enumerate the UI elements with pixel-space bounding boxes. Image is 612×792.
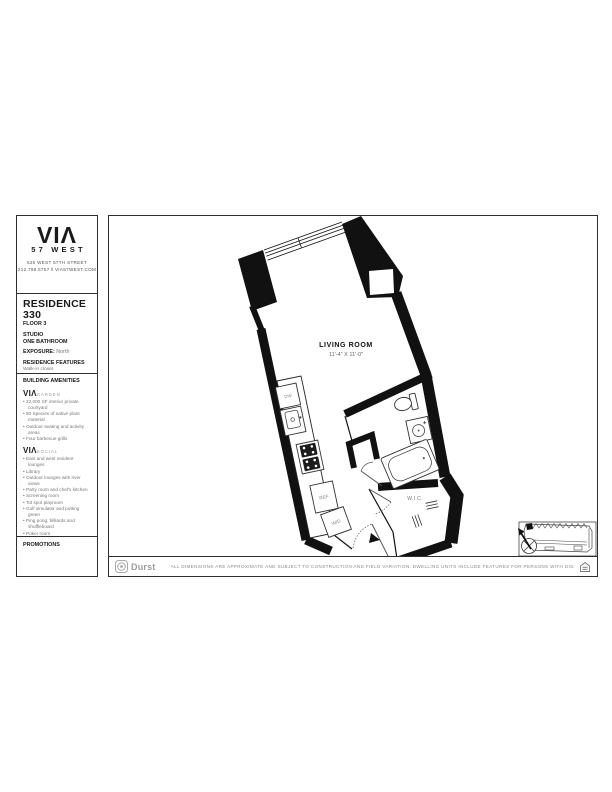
sidebar-panel: VIΛ 57 WEST 625 WEST 57TH STREET 212.789…: [16, 215, 98, 577]
via-logo: VIΛ: [17, 225, 97, 245]
floorplan-sheet: DW REF W/D: [108, 215, 598, 577]
living-room-label: LIVING ROOM: [319, 342, 373, 349]
unit-type-1: STUDIO: [23, 332, 91, 339]
exposure-value: North: [56, 349, 69, 355]
wic-label: W.I.C.: [407, 496, 422, 502]
amenity-group-garden-title: VIΛGARDEN: [23, 388, 91, 399]
compass-icon: [518, 528, 537, 554]
living-room-dims: 11'-4" X 11'-0": [329, 352, 363, 358]
exposure-label: EXPOSURE:: [23, 349, 55, 355]
doors: [353, 462, 391, 557]
unit-location-marker: [526, 523, 533, 530]
amenity-item: 22,000 SF interior private courtyard: [23, 399, 91, 411]
amenity-item: East and west resident lounges: [23, 456, 91, 468]
brand-address: 625 WEST 57TH STREET: [17, 260, 97, 267]
facade-notch: [369, 269, 394, 295]
brand-block: VIΛ 57 WEST 625 WEST 57TH STREET 212.789…: [17, 216, 97, 293]
residence-info-block: RESIDENCE 330 FLOOR 3 STUDIO ONE BATHROO…: [17, 293, 97, 373]
floorplan-drawing: DW REF W/D: [109, 216, 597, 557]
amenity-item: Ping pong, billiards and shuffleboard: [23, 518, 91, 530]
via-mark: VIΛ: [23, 389, 37, 398]
exposure-line: EXPOSURE: North: [23, 349, 91, 356]
features-header: RESIDENCE FEATURES: [23, 360, 91, 367]
amenity-item: Outdoor seating and activity areas: [23, 424, 91, 436]
entry-marker: [369, 533, 380, 543]
dishwasher: DW: [275, 383, 300, 409]
brand-phone-web: 212.789.5757 ‖ VIA57WEST.COM: [17, 267, 97, 274]
amenity-group-social-title: VIΛSOCIAL: [23, 445, 91, 456]
building-amenities-block: BUILDING AMENITIES VIΛGARDEN 22,000 SF i…: [17, 373, 97, 536]
residence-title: RESIDENCE 330: [23, 299, 91, 321]
amenity-group-name: GARDEN: [37, 392, 61, 397]
promotions-header: PROMOTIONS: [23, 542, 91, 549]
amenities-header: BUILDING AMENITIES: [23, 378, 91, 385]
promotions-block: PROMOTIONS: [17, 536, 97, 574]
residence-floor: FLOOR 3: [23, 321, 91, 328]
disclaimer-text: ALL DIMENSIONS ARE APPROXIMATE AND SUBJE…: [171, 564, 574, 569]
durst-logo-text: Durst: [131, 562, 156, 572]
amenity-item: 50 Species of native plant material: [23, 411, 91, 423]
amenity-item: Four barbecue grills: [23, 436, 91, 442]
amenity-item: Golf simulator and putting green: [23, 506, 91, 518]
unit-type-2: ONE BATHROOM: [23, 339, 91, 346]
durst-logo: Durst: [115, 560, 156, 573]
closet-rod-symbol: [412, 514, 422, 527]
via-logo-sub: 57 WEST: [20, 245, 97, 254]
amenity-group-name: SOCIAL: [37, 449, 58, 454]
footer-strip: Durst ALL DIMENSIONS ARE APPROXIMATE AND…: [109, 556, 597, 576]
amenity-item: Outdoor lounges with river views: [23, 475, 91, 487]
equal-housing-icon: [579, 561, 591, 573]
closet-rod-symbol: [426, 501, 439, 509]
via-mark: VIΛ: [23, 446, 37, 455]
exterior-wall: [238, 216, 403, 311]
bathroom-sink: [406, 416, 432, 443]
window-glazing: [264, 222, 346, 260]
toilet: [393, 393, 419, 414]
durst-logo-icon: [115, 560, 128, 573]
